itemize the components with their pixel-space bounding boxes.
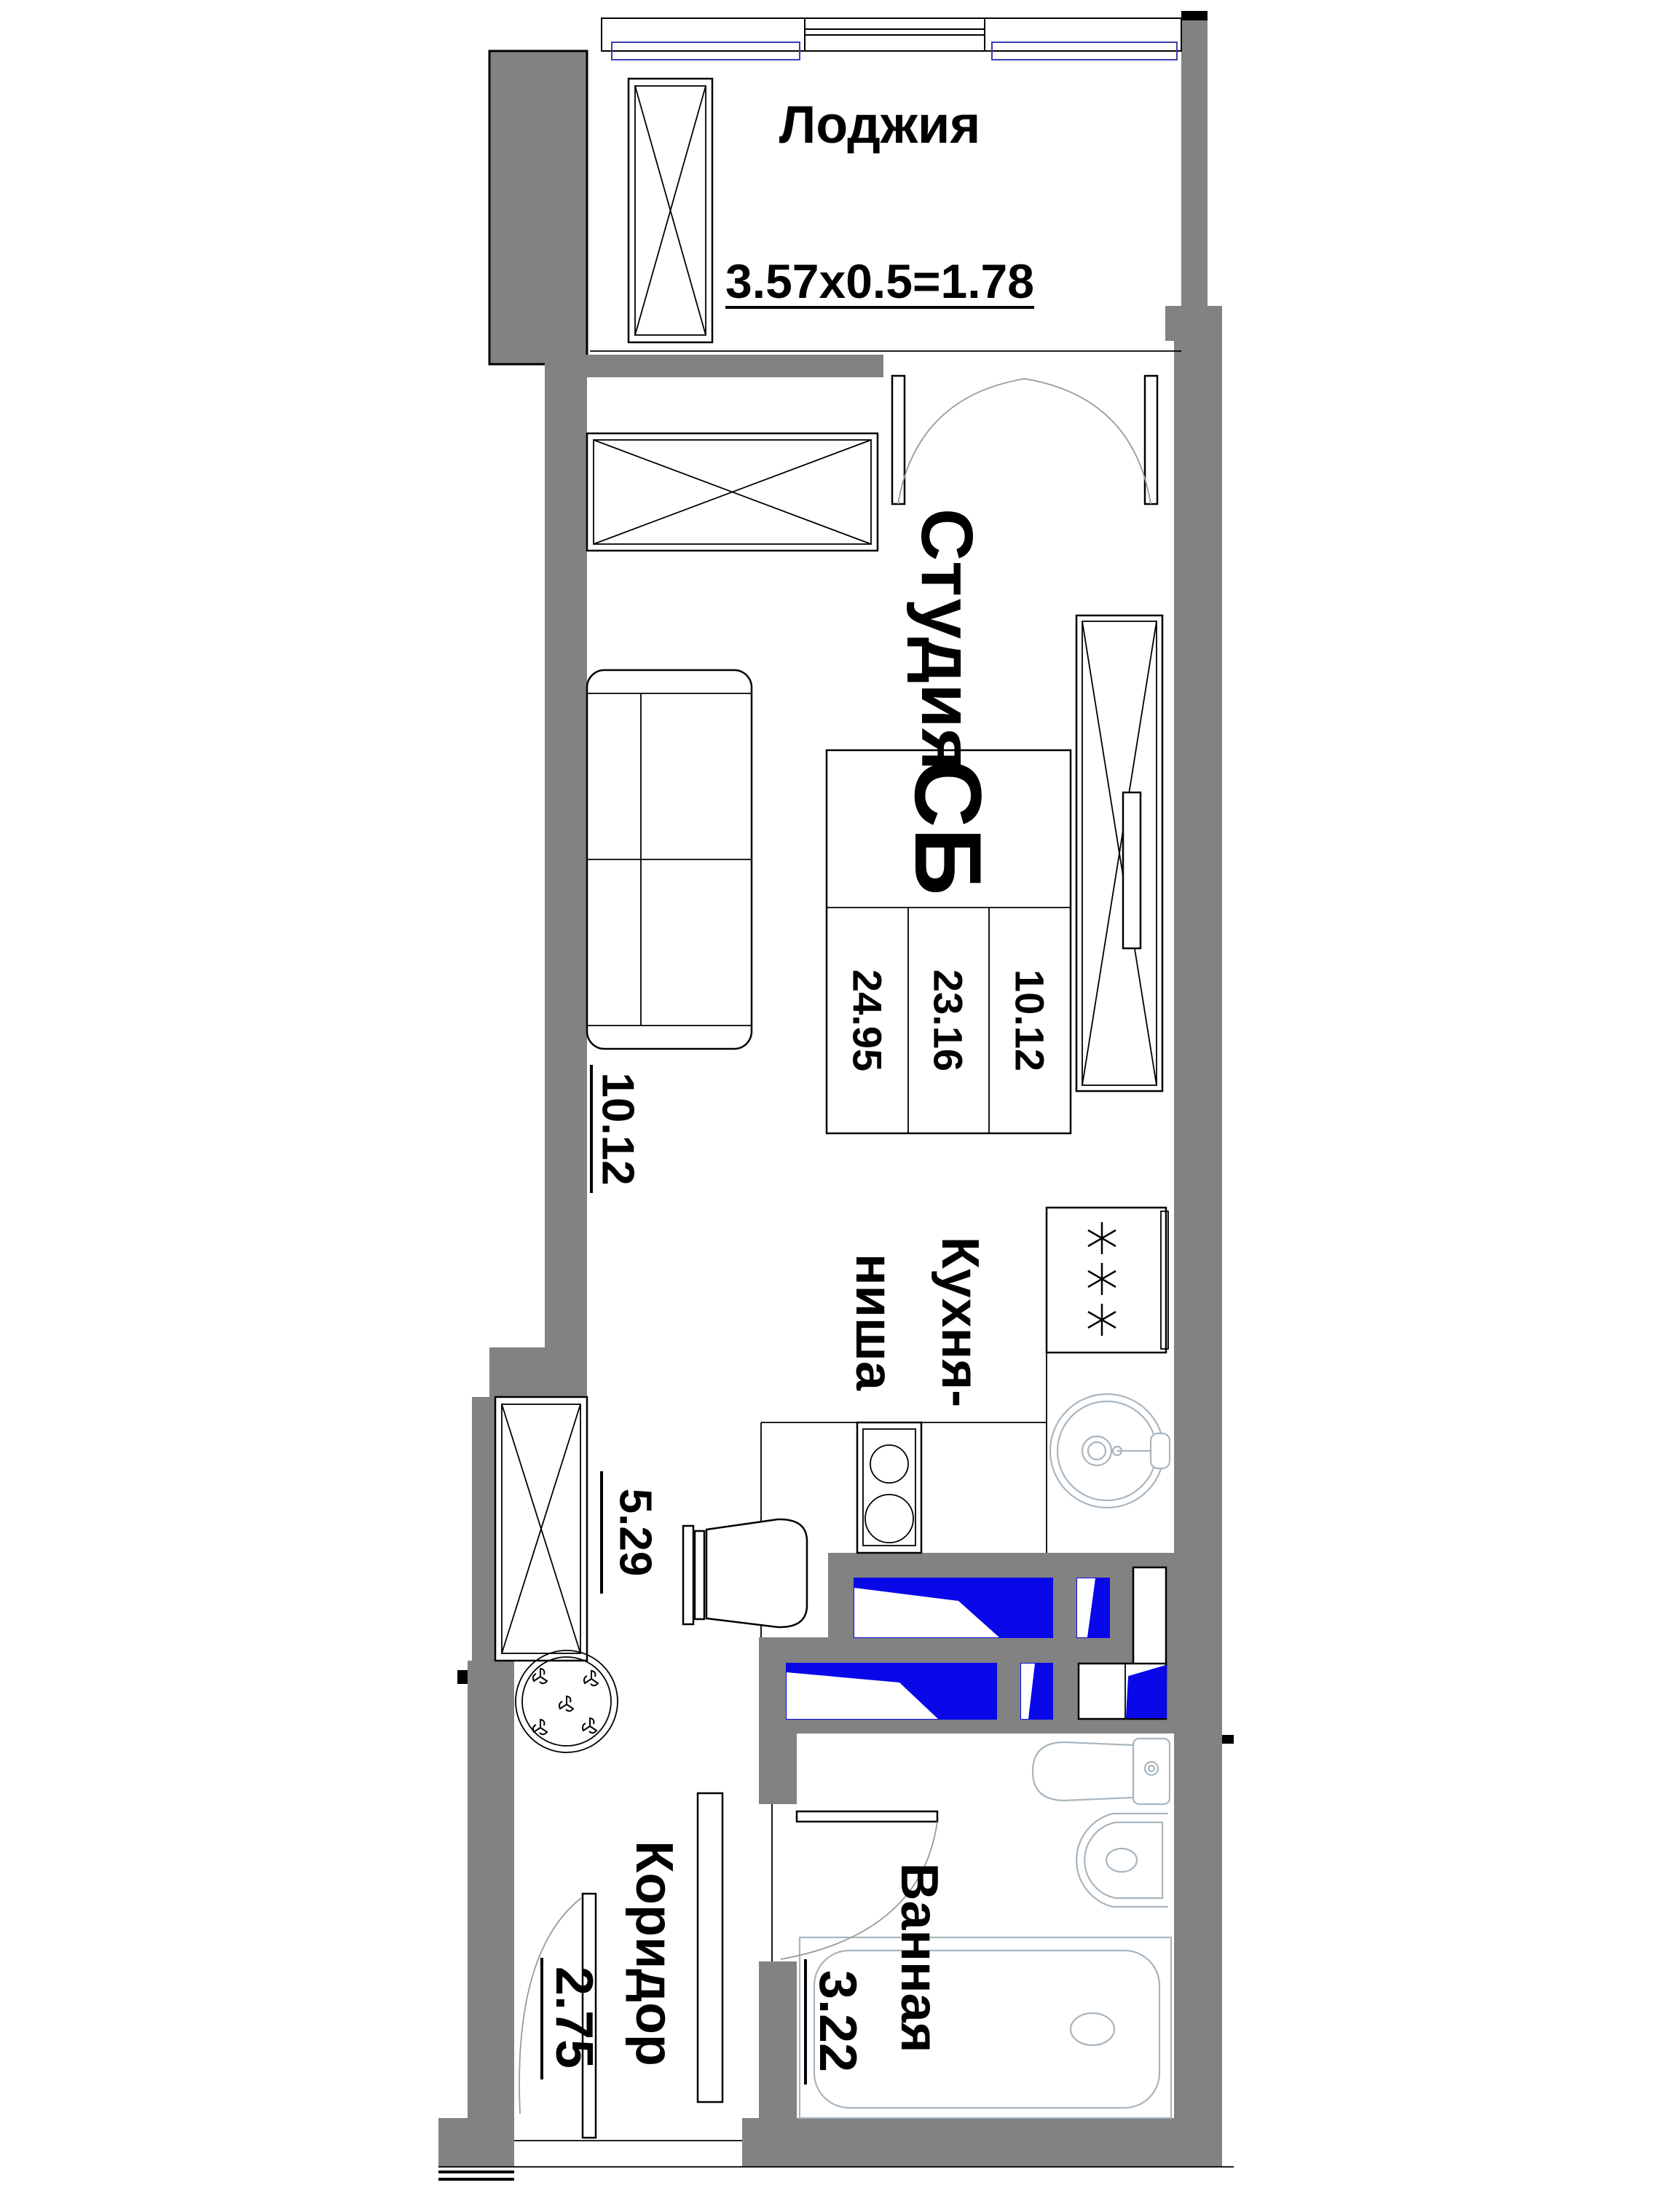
chair-back-bar-2 — [695, 1531, 704, 1619]
toilet-bowl — [1033, 1742, 1133, 1800]
wall-kitchen-block — [489, 1347, 587, 1397]
wall-loggia-right — [1181, 20, 1208, 307]
stamp-type-code: СБ — [895, 759, 1001, 895]
stamp-living-area: 10.12 — [1007, 969, 1053, 1071]
label-kitchen-line1: Кухня- — [931, 1237, 989, 1407]
wall-tick-right — [1222, 1735, 1234, 1744]
toilet — [1033, 1739, 1170, 1804]
label-loggia-dimension: 3.57x0.5=1.78 — [725, 254, 1034, 308]
label-corridor: Коридор — [625, 1841, 683, 2066]
chair-seat — [706, 1519, 807, 1627]
window-left — [495, 1397, 587, 1661]
label-kitchen-area: 5.29 — [610, 1489, 661, 1577]
bath-sink — [1076, 1814, 1168, 1907]
label-bathroom-area: 3.22 — [808, 1970, 867, 2072]
stamp-total-area: 24.95 — [845, 969, 891, 1071]
kitchen-sink — [1050, 1394, 1170, 1508]
bathroom-door-leaf — [797, 1811, 937, 1822]
wall-partition-top — [759, 1733, 797, 1804]
wall-left-studio — [545, 377, 587, 1347]
balcony-door — [892, 376, 1157, 504]
faucet-base — [1151, 1433, 1170, 1468]
wall-bottom-bathroom — [742, 2118, 1222, 2167]
wall-left-corridor — [468, 1661, 514, 2118]
stove — [857, 1422, 921, 1553]
wall-cap-black — [1181, 11, 1208, 21]
stamp-apartment-area: 23.16 — [926, 969, 972, 1071]
wall-partition-bottom — [759, 1961, 797, 2118]
sofa — [587, 670, 752, 1049]
wall-divider-loggia — [545, 355, 883, 377]
wall-right — [1174, 339, 1222, 2167]
chair-swirl-2 — [584, 1671, 598, 1685]
label-kitchen-line2: ниша — [845, 1253, 903, 1391]
wardrobe-tall — [1076, 615, 1162, 1091]
chair-swirl-5 — [583, 1718, 596, 1733]
wall-outside-block — [489, 51, 587, 364]
loggia-cabinet — [629, 79, 712, 342]
chair — [683, 1519, 807, 1627]
dining-table — [516, 1650, 618, 1752]
corridor-shelf — [698, 1793, 722, 2102]
label-corridor-area: 2.75 — [545, 1967, 603, 2069]
fridge — [1047, 1208, 1168, 1353]
wall-tick-left — [457, 1670, 468, 1684]
floor-plan-canvas: СБ 24.95 23.16 10.12 — [0, 0, 1678, 2212]
bath-sink-outer — [1076, 1814, 1168, 1907]
wall-corner-entrance — [438, 2118, 514, 2167]
balcony-door-arc-left — [898, 379, 1025, 504]
label-studio: Студия — [906, 508, 988, 771]
area-stamp-table: СБ 24.95 23.16 10.12 — [827, 750, 1071, 1133]
wardrobe-tv-panel — [1123, 792, 1141, 948]
wardrobe-top — [587, 433, 878, 551]
chair-back-bar-1 — [683, 1526, 693, 1624]
chair-swirl-3 — [559, 1696, 573, 1711]
label-studio-area: 10.12 — [593, 1072, 643, 1185]
label-loggia: Лоджия — [779, 96, 981, 154]
label-bathroom: Ванная — [890, 1862, 948, 2052]
wall-window-strip — [472, 1397, 495, 1661]
balcony-door-arc-right — [1025, 379, 1151, 504]
wall-right-step — [1165, 306, 1222, 341]
